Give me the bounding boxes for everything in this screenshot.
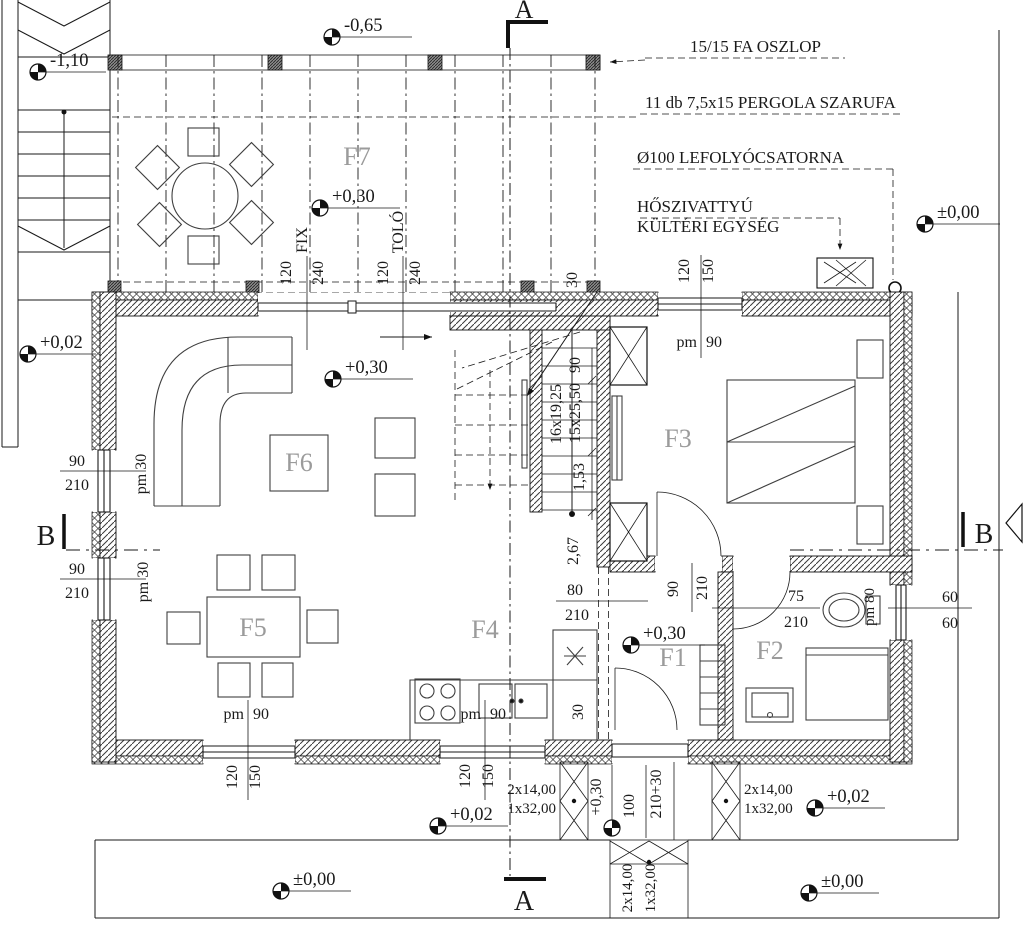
door-f3 — [657, 492, 721, 556]
dim-100: 100 — [621, 794, 638, 818]
room-label-f7: F7 — [343, 142, 370, 171]
callout-rafter: 11 db 7,5x15 PERGOLA SZARUFA — [645, 93, 896, 112]
dim-pm: pm — [677, 334, 698, 351]
dim-90: 90 — [490, 706, 506, 723]
dim-210: 210 — [65, 585, 89, 602]
room-label-f3: F3 — [664, 424, 691, 453]
shower — [806, 648, 888, 720]
dim-240: 240 — [407, 261, 424, 285]
shaft-top — [610, 327, 647, 385]
dim-120: 120 — [676, 259, 693, 283]
level-text: ±0,00 — [293, 870, 336, 890]
freezer-star-icon — [564, 647, 586, 665]
level-marker-zero-topright: ±0,00 — [917, 203, 1000, 232]
floor-plan-page: { "sections": {"a": "A", "b": "B"}, "roo… — [0, 0, 1024, 944]
dim-60: 60 — [942, 589, 958, 606]
dim-75: 75 — [788, 588, 804, 605]
room-label-f4: F4 — [471, 615, 498, 644]
dim-steps: 2x14,00 — [744, 782, 793, 798]
level-marker-plus030-living: +0,30 — [325, 358, 413, 387]
kitchen-counter — [410, 630, 597, 740]
dim-120: 120 — [375, 261, 392, 285]
stove — [415, 679, 460, 723]
level-text: -0,65 — [344, 16, 383, 36]
garden-table-set — [136, 128, 274, 264]
dim-153: 1,53 — [571, 463, 588, 491]
level-marker-plus030-pergola: +0,30 — [312, 187, 400, 216]
dim-30: 30 — [564, 272, 581, 288]
dim-240: 240 — [310, 261, 327, 285]
nightstand — [857, 340, 883, 378]
dim-90: 90 — [69, 561, 85, 578]
entrance-door-opening — [612, 741, 688, 763]
level-text: +0,02 — [450, 805, 493, 825]
fridge — [553, 630, 597, 740]
window-right-f2 — [891, 585, 911, 640]
room-label-f2: F2 — [756, 636, 783, 665]
dim-fix: FIX — [294, 227, 311, 253]
room-label-f1: F1 — [659, 643, 686, 672]
callout-heatpump-line2: KÜLTÉRI EGYSÉG — [637, 217, 779, 236]
nightstand — [857, 506, 883, 544]
dim-pm30: pm 30 — [133, 454, 150, 494]
dim-150: 150 — [247, 765, 264, 789]
callout-downpipe: Ø100 LEFOLYÓCSATORNA — [637, 148, 845, 167]
dim-210: 210 — [65, 477, 89, 494]
section-letter-b: B — [37, 521, 56, 552]
pergola-post — [108, 55, 122, 70]
dim-90: 90 — [665, 581, 682, 597]
dim-60: 60 — [942, 615, 958, 632]
section-marker-a-bottom: A — [504, 879, 546, 917]
section-letter-b: B — [975, 519, 994, 550]
room-label-f5: F5 — [239, 613, 266, 642]
door-opening-f3 — [655, 557, 722, 571]
callout-post: 15/15 FA OSZLOP — [690, 37, 821, 56]
window-left-1 — [93, 450, 115, 512]
heat-pump-unit — [817, 258, 873, 288]
annotation-callouts: 15/15 FA OSZLOP 11 db 7,5x15 PERGOLA SZA… — [610, 37, 903, 294]
dim-steps: 2x14,00 — [507, 782, 556, 798]
level-symbol — [604, 820, 620, 836]
site-boundary-lines — [2, 0, 999, 918]
dim-pm: pm — [461, 706, 482, 723]
dim-120: 120 — [224, 765, 241, 789]
window-left-2 — [93, 558, 115, 620]
level-text: ±0,00 — [937, 203, 980, 223]
shaft-bottom — [610, 503, 647, 561]
section-letter-a: A — [514, 886, 535, 917]
level-text: -1,10 — [50, 51, 89, 71]
level-marker-zero-bottomright: ±0,00 — [801, 872, 879, 901]
dim-tolo: TOLÓ — [388, 211, 407, 253]
entry-steps-right — [712, 762, 740, 840]
door-f2 — [733, 572, 790, 629]
dim-210: 210 — [694, 576, 711, 600]
dim-pm30: pm 30 — [135, 562, 152, 602]
dim-pm: pm — [224, 706, 245, 723]
dim-90: 90 — [253, 706, 269, 723]
entry-steps-left — [560, 762, 588, 840]
window-top-f3 — [658, 293, 742, 315]
level-marker-plus002-left: +0,02 — [20, 333, 96, 362]
dim-210: 210 — [565, 607, 589, 624]
room-label-f6: F6 — [285, 448, 312, 477]
dim-30: 30 — [570, 704, 587, 720]
pergola-post — [268, 55, 282, 70]
bed — [727, 340, 883, 544]
dim-steps: 2x14,00 — [620, 864, 636, 913]
exterior-walls — [92, 292, 912, 764]
dim-267: 2,67 — [565, 537, 582, 565]
window-bottom-1 — [203, 741, 295, 763]
pergola-rafters — [118, 55, 595, 293]
dim-entry-level: +0,30 — [588, 778, 605, 815]
chair — [136, 146, 180, 190]
dim-150: 150 — [480, 764, 497, 788]
sofa — [154, 337, 292, 506]
dim-90: 90 — [706, 334, 722, 351]
dim-risers: 16x19,25 — [548, 384, 565, 444]
dim-210plus30: 210+30 — [648, 769, 665, 818]
chair — [230, 143, 274, 187]
level-marker-zero-bottomleft: ±0,00 — [273, 870, 351, 899]
section-marker-a-top: A — [506, 0, 548, 48]
dim-treads: 15x25,50 — [567, 383, 584, 443]
dim-80: 80 — [567, 582, 583, 599]
wardrobe — [612, 396, 622, 480]
level-text: +0,30 — [643, 624, 686, 644]
door-opening-f2 — [733, 557, 790, 571]
level-marker-minus065: -0,65 — [324, 16, 412, 45]
level-marker-minus110: -1,10 — [30, 51, 106, 80]
level-text: +0,30 — [345, 358, 388, 378]
window-bottom-2 — [440, 741, 545, 763]
level-text: +0,02 — [40, 333, 83, 353]
dim-steps: 1x32,00 — [744, 801, 793, 817]
pergola-post — [586, 55, 600, 70]
armchairs — [375, 418, 415, 516]
dim-steps: 1x32,00 — [643, 864, 659, 913]
dim-150: 150 — [700, 259, 717, 283]
dim-steps: 1x32,00 — [507, 801, 556, 817]
floor-plan-drawing: 15/15 FA OSZLOP 11 db 7,5x15 PERGOLA SZA… — [0, 0, 1024, 944]
callout-heatpump-line1: HŐSZIVATTYÚ — [637, 197, 753, 216]
level-text: +0,02 — [827, 787, 870, 807]
dim-90: 90 — [567, 357, 584, 373]
washbasin — [746, 688, 793, 722]
level-text: +0,30 — [332, 187, 375, 207]
dim-210: 210 — [784, 614, 808, 631]
level-text: ±0,00 — [821, 872, 864, 892]
dim-120: 120 — [457, 764, 474, 788]
dim-90: 90 — [69, 453, 85, 470]
round-table — [172, 163, 238, 229]
level-marker-plus002-bottomleft: +0,02 — [430, 805, 508, 834]
pergola-post — [428, 55, 442, 70]
dim-120: 120 — [278, 261, 295, 285]
level-marker-plus002-bottomright: +0,02 — [807, 787, 885, 816]
section-arrow-b — [1006, 504, 1022, 542]
door-entrance — [615, 668, 677, 730]
dim-pm80: pm 80 — [862, 588, 878, 626]
